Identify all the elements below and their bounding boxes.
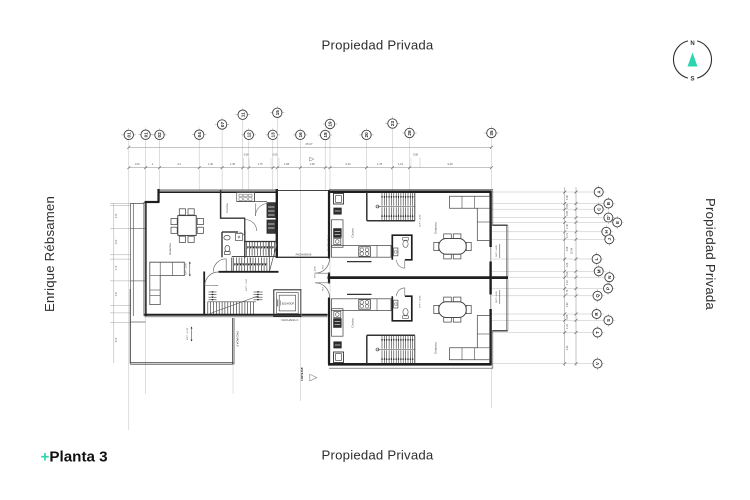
svg-text:Propiedad Privada: Propiedad Privada [703, 198, 718, 310]
svg-text:01: 01 [127, 132, 132, 138]
svg-text:16: 16 [298, 132, 303, 138]
svg-text:4.05: 4.05 [116, 337, 118, 342]
svg-text:12: 12 [247, 132, 252, 138]
svg-text:ELEVADOR: ELEVADOR [282, 303, 295, 306]
svg-text:35: 35 [489, 130, 494, 136]
svg-text:N.P.T. +8.05: N.P.T. +8.05 [420, 214, 422, 227]
svg-text:25.07: 25.07 [306, 142, 313, 146]
svg-text:B: B [606, 202, 611, 205]
svg-text:N.P.T. +7.02: N.P.T. +7.02 [246, 278, 248, 291]
svg-text:0.63: 0.63 [566, 314, 569, 319]
svg-text:N.P.T. +5.78: N.P.T. +5.78 [187, 327, 189, 340]
svg-text:18: 18 [323, 132, 328, 138]
svg-text:1.40: 1.40 [208, 162, 214, 166]
svg-text:2.32: 2.32 [116, 213, 118, 218]
svg-text:02: 02 [157, 132, 162, 138]
svg-text:1.10: 1.10 [398, 162, 404, 166]
svg-text:1.78: 1.78 [377, 162, 383, 166]
svg-text:FACHADA F: FACHADA F [235, 331, 239, 347]
svg-text:1.13: 1.13 [566, 280, 569, 285]
svg-text:01: 01 [143, 132, 148, 138]
svg-text:1.45: 1.45 [230, 162, 236, 166]
svg-text:3.4: 3.4 [177, 162, 181, 166]
svg-text:S: S [690, 77, 694, 83]
svg-text:FACHADA B: FACHADA B [296, 252, 312, 256]
svg-text:0.73: 0.73 [566, 289, 569, 294]
svg-text:1.82: 1.82 [566, 302, 569, 307]
svg-text:2.47: 2.47 [116, 291, 118, 296]
svg-text:20: 20 [364, 132, 369, 138]
svg-text:E: E [615, 221, 620, 224]
svg-text:H: H [604, 230, 609, 233]
svg-text:1.40: 1.40 [566, 345, 569, 350]
svg-text:Cocina: Cocina [351, 228, 355, 238]
svg-text:Cocina: Cocina [351, 318, 355, 328]
svg-text:2.62: 2.62 [116, 239, 118, 244]
svg-text:V: V [595, 362, 600, 365]
svg-text:L: L [594, 257, 599, 260]
svg-text:2.18: 2.18 [116, 265, 118, 270]
svg-text:0.83: 0.83 [566, 210, 569, 215]
svg-text:0.60: 0.60 [566, 271, 569, 276]
svg-text:CORTE B-B': CORTE B-B' [301, 367, 304, 381]
svg-text:N.P.T. +8.05: N.P.T. +8.05 [420, 295, 422, 308]
svg-text:Estancia: Estancia [433, 222, 437, 234]
svg-text:S: S [606, 319, 611, 322]
svg-text:P: P [606, 287, 611, 290]
svg-text:N.P.T. +8.05: N.P.T. +8.05 [250, 257, 252, 269]
svg-text:Q: Q [595, 294, 600, 298]
svg-text:1.58: 1.58 [284, 162, 290, 166]
svg-text:23: 23 [390, 121, 395, 127]
svg-text:Enrique Rébsamen: Enrique Rébsamen [42, 196, 57, 312]
svg-text:9.48: 9.48 [447, 162, 453, 166]
svg-text:Cocina: Cocina [225, 203, 229, 213]
svg-text:13: 13 [271, 132, 276, 138]
svg-text:0.74: 0.74 [566, 232, 569, 237]
svg-text:19: 19 [328, 121, 333, 127]
svg-text:D': D' [606, 215, 611, 219]
svg-text:Propiedad Privada: Propiedad Privada [322, 447, 434, 462]
svg-text:15: 15 [275, 110, 280, 116]
svg-text:N.P.T. +8.05: N.P.T. +8.05 [186, 262, 188, 275]
svg-text:N: N [690, 41, 694, 47]
svg-text:N.P.T. +8.05: N.P.T. +8.05 [496, 291, 498, 303]
svg-text:07: 07 [220, 122, 225, 128]
svg-text:FACHADA C: FACHADA C [281, 318, 299, 322]
svg-text:11: 11 [240, 112, 245, 117]
svg-text:Estancia: Estancia [168, 243, 172, 255]
svg-text:1.22: 1.22 [566, 323, 569, 328]
svg-text:+Planta 3: +Planta 3 [41, 449, 108, 466]
svg-text:0.98: 0.98 [566, 195, 569, 200]
svg-text:1.23: 1.23 [566, 262, 569, 267]
svg-text:T: T [595, 331, 600, 334]
svg-text:FACHADA A: FACHADA A [275, 229, 279, 245]
svg-text:0.60: 0.60 [566, 203, 569, 208]
svg-text:N.P.T. +8.05: N.P.T. +8.05 [314, 265, 316, 278]
svg-text:04: 04 [197, 132, 202, 138]
svg-text:Estancia: Estancia [433, 342, 437, 354]
svg-text:1.60: 1.60 [134, 162, 140, 166]
svg-text:5.68: 5.68 [244, 154, 249, 157]
svg-text:28: 28 [407, 130, 412, 136]
svg-text:M: M [596, 269, 601, 273]
svg-text:N.P.T. +8.05: N.P.T. +8.05 [496, 245, 498, 257]
svg-text:5.05: 5.05 [273, 154, 278, 157]
svg-text:1.96: 1.96 [566, 246, 569, 251]
svg-text:10.94: 10.94 [571, 247, 574, 254]
svg-text:2.40: 2.40 [345, 162, 351, 166]
svg-text:5.98: 5.98 [413, 154, 418, 157]
svg-text:1.40: 1.40 [566, 223, 569, 228]
svg-text:N: N [607, 276, 612, 279]
svg-text:1.75: 1.75 [257, 162, 263, 166]
svg-text:1.38: 1.38 [309, 162, 315, 166]
svg-text:Propiedad Privada: Propiedad Privada [322, 38, 434, 53]
